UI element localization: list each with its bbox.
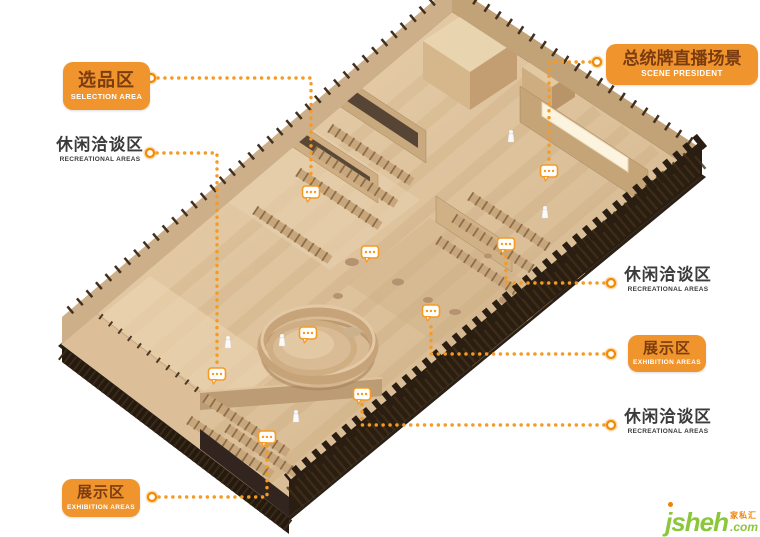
- watermark-chinese: 家私汇: [730, 512, 757, 520]
- recreational-right-upper-zh: 休闲洽谈区: [624, 266, 712, 284]
- label-recreational-left: 休闲洽谈区 RECREATIONAL AREAS: [48, 136, 152, 163]
- watermark-tld: .com: [730, 521, 758, 533]
- label-exhibition-right: 展示区 EXHIBITION AREAS: [628, 335, 706, 372]
- selection-area-zh: 选品区: [78, 71, 135, 91]
- exhibition-right-en: EXHIBITION AREAS: [633, 359, 701, 366]
- selection-area-en: SELECTION AREA: [71, 93, 143, 101]
- recreational-right-upper-en: RECREATIONAL AREAS: [628, 286, 709, 293]
- watermark-latin: jsheh: [665, 510, 728, 535]
- amphitheater: [260, 306, 376, 389]
- label-exhibition-bottom: 展示区 EXHIBITION AREAS: [62, 479, 140, 517]
- scene-president-zh: 总统牌直播场景: [623, 50, 742, 69]
- recreational-left-en: RECREATIONAL AREAS: [60, 156, 141, 163]
- label-recreational-right-upper: 休闲洽谈区 RECREATIONAL AREAS: [616, 266, 720, 293]
- watermark-j-dot-icon: [668, 502, 673, 507]
- exhibition-bottom-en: EXHIBITION AREAS: [67, 504, 135, 511]
- scene-president-en: SCENE PRESIDENT: [641, 70, 723, 79]
- label-recreational-right-lower: 休闲洽谈区 RECREATIONAL AREAS: [616, 408, 720, 435]
- label-scene-president: 总统牌直播场景 SCENE PRESIDENT: [606, 44, 758, 85]
- recreational-left-zh: 休闲洽谈区: [56, 136, 144, 154]
- exhibition-right-zh: 展示区: [643, 341, 691, 358]
- exhibition-bottom-zh: 展示区: [77, 485, 125, 502]
- recreational-right-lower-en: RECREATIONAL AREAS: [628, 428, 709, 435]
- recreational-right-lower-zh: 休闲洽谈区: [624, 408, 712, 426]
- label-selection-area: 选品区 SELECTION AREA: [63, 62, 150, 110]
- site-watermark: jsheh 家私汇 .com: [665, 501, 758, 535]
- infographic-canvas: 选品区 SELECTION AREA 休闲洽谈区 RECREATIONAL AR…: [0, 0, 760, 537]
